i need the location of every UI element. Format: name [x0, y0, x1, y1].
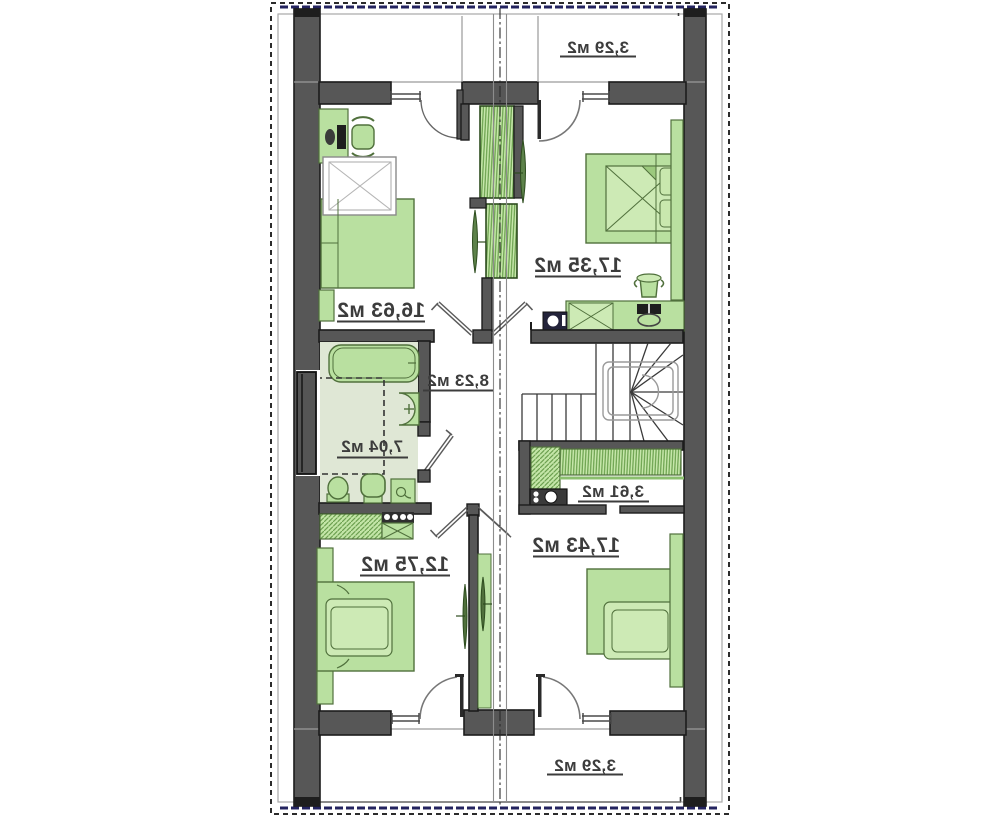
svg-text:17,43 м2: 17,43 м2 — [532, 534, 620, 557]
svg-text:17,35 м2: 17,35 м2 — [534, 254, 622, 277]
svg-text:16,63 м2: 16,63 м2 — [337, 299, 425, 322]
svg-text:3,29 м2: 3,29 м2 — [567, 38, 629, 57]
svg-text:12,75 м2: 12,75 м2 — [361, 553, 449, 576]
svg-text:7,04 м2: 7,04 м2 — [341, 437, 403, 456]
svg-text:3,61 м2: 3,61 м2 — [582, 482, 644, 501]
svg-text:3,29 м2: 3,29 м2 — [554, 756, 616, 775]
svg-text:8,23 м2: 8,23 м2 — [427, 371, 489, 390]
